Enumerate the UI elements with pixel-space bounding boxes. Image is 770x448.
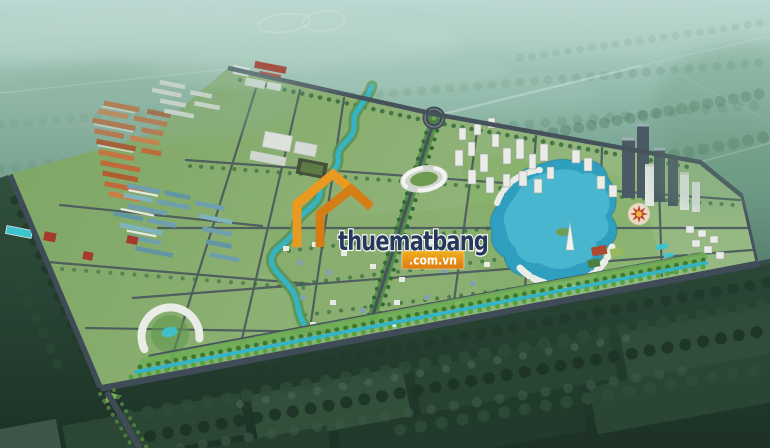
- watermark-domain-badge: .com.vn: [402, 251, 464, 269]
- star-plaza: [628, 203, 650, 225]
- render-canvas: thuematbang .com.vn: [0, 0, 770, 448]
- watermark-domain: .com.vn: [409, 253, 457, 268]
- aerial-masterplan-render: thuematbang .com.vn: [0, 0, 770, 448]
